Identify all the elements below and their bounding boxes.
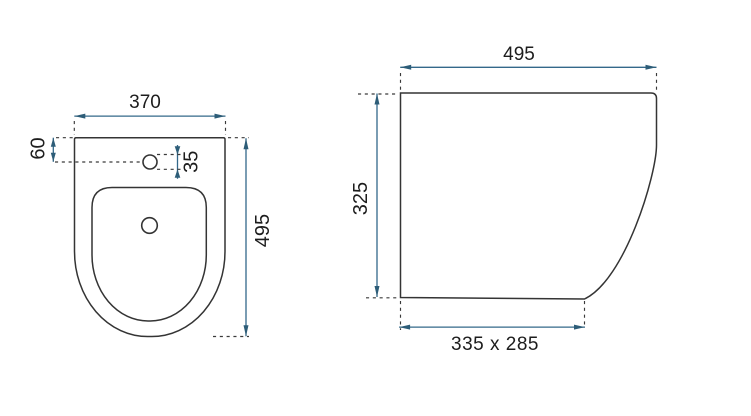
svg-text:495: 495	[503, 44, 535, 65]
svg-text:35: 35	[180, 151, 202, 173]
svg-text:370: 370	[129, 92, 161, 113]
svg-text:335 x 285: 335 x 285	[451, 334, 539, 355]
svg-text:60: 60	[27, 137, 49, 159]
svg-text:495: 495	[252, 214, 274, 247]
svg-text:325: 325	[350, 182, 372, 215]
